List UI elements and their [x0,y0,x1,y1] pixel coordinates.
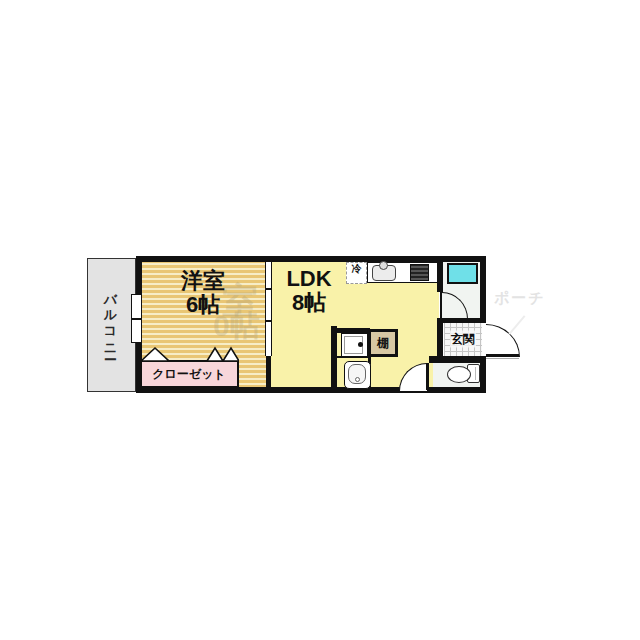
sliding-door-tick-1 [265,288,272,290]
porch-watermark-line [509,315,526,335]
window-center-tick [131,318,142,320]
entrance-door-underline [486,358,519,359]
closet-label: クローゼット [152,366,225,383]
porch-watermark: ポーチ [494,289,546,308]
entrance-door-leaf [486,354,519,357]
entrance-label: 玄関 [450,331,476,348]
western-room-size: 6帖 [186,292,220,317]
closet-folding-door-icon [139,346,239,361]
wall-left-lower [136,342,142,393]
stove-icon [410,264,429,281]
refrigerator-space: 冷 [346,262,367,284]
toilet-tank-line [475,367,476,380]
western-room-name: 洋室 [181,268,225,293]
bathtub [447,263,478,284]
ldk-size: 8帖 [292,290,326,315]
washbasin-drain-icon [355,377,360,382]
faucet-icon [379,261,388,270]
ldk-label: LDK 8帖 [286,267,331,315]
wall-mid-lower [266,356,271,393]
wall-right-upper [480,256,486,323]
sliding-door [265,262,272,356]
western-room-label: 洋室 6帖 [181,269,225,317]
refrigerator-label: 冷 [352,263,362,274]
sliding-door-tick-2 [265,320,272,322]
balcony-label: バルコニー [101,285,119,369]
toilet-door-leaf [426,363,429,390]
ldk-name: LDK [286,266,331,291]
washing-machine-tap-icon [358,342,363,347]
toilet-bowl [447,366,471,383]
wall-bottom [136,387,486,393]
shelf-label: 棚 [377,335,389,352]
wall-left-upper [136,256,142,296]
wall-entrance-bottom [429,356,486,363]
